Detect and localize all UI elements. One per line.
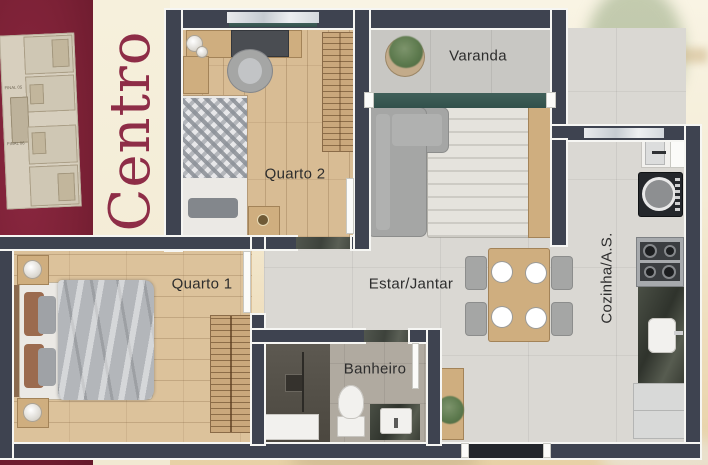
key-plan-unit-label: FINAL 06 <box>7 142 25 147</box>
room-label-varanda: Varanda <box>449 48 507 65</box>
bathroom-door <box>412 343 419 389</box>
fridge-door-split <box>634 410 684 411</box>
kitchen-window-sill <box>584 128 664 138</box>
wardrobe-bedroom1 <box>210 315 252 433</box>
wall-bathroom-top <box>252 330 364 342</box>
washer-door <box>645 180 673 208</box>
fridge <box>634 384 684 438</box>
burner <box>664 267 674 277</box>
living-plant <box>436 396 464 424</box>
bed-pillow-gray <box>38 296 56 334</box>
wardrobe-bedroom2 <box>322 32 358 152</box>
dining-chair <box>466 257 486 289</box>
service-door <box>670 139 685 168</box>
single-bed-pillow <box>188 198 238 218</box>
room-label-quarto1: Quarto 1 <box>172 276 233 293</box>
wall-bathroom-right <box>428 330 440 444</box>
kitchen-sink <box>648 318 676 353</box>
wall-balcony-right <box>552 10 566 140</box>
balcony-sliding-door <box>374 93 546 108</box>
toilet-tank <box>337 416 365 437</box>
dining-chair <box>466 303 486 335</box>
sink-faucet <box>394 418 398 428</box>
toilet-bowl <box>338 385 364 419</box>
bed-duvet <box>58 280 154 400</box>
desk-decor <box>197 47 207 57</box>
single-bed-blanket <box>181 98 247 178</box>
wall-left-upper <box>166 10 181 250</box>
bathroom-door-threshold <box>364 330 410 342</box>
room-label-estar-jantar: Estar/Jantar <box>369 276 453 293</box>
burner <box>646 268 654 276</box>
place-setting <box>526 263 546 283</box>
office-chair-seat <box>238 58 262 84</box>
shower-tray <box>266 415 318 439</box>
key-plan-room <box>29 164 80 206</box>
balcony-door-sill <box>546 92 556 108</box>
room-label-banheiro: Banheiro <box>344 361 406 378</box>
sofa-cushion <box>392 114 442 146</box>
key-plan: FINAL 05 FINAL 06 <box>0 32 82 209</box>
key-plan-unit-label: FINAL 05 <box>4 86 22 91</box>
nightstand-bowl <box>258 215 268 225</box>
desk-return <box>183 56 209 94</box>
plan-title: Centro <box>95 6 167 256</box>
laundry-faucet <box>652 151 666 154</box>
floor-plan-poster: FINAL 05 FINAL 06 Centro <box>0 0 708 465</box>
bedroom2-door-threshold <box>296 237 352 249</box>
wall-bedroom1-right-top <box>252 237 264 249</box>
bedroom2-door <box>346 178 354 234</box>
balcony-plant <box>389 36 423 68</box>
entry-door-jamb <box>543 443 551 458</box>
sofa-cushions <box>376 114 390 230</box>
shower-column <box>286 375 302 391</box>
place-setting <box>492 262 512 282</box>
tv-sideboard <box>528 100 552 238</box>
wall-right <box>686 126 700 458</box>
burner <box>666 247 674 255</box>
room-label-cozinha-as: Cozinha/A.S. <box>599 232 616 323</box>
key-plan-room <box>27 124 78 164</box>
bedroom1-door <box>243 251 251 313</box>
balcony-door-sill <box>364 92 374 108</box>
key-plan-room <box>23 35 74 75</box>
burner <box>645 246 655 256</box>
dining-chair <box>552 303 572 335</box>
key-plan-room <box>25 74 76 112</box>
place-setting <box>492 307 512 327</box>
nightstand-lamp <box>24 404 41 421</box>
entry-door-recess <box>468 444 544 458</box>
kitchen-faucet <box>674 331 683 335</box>
bed-pillow-gray <box>38 348 56 386</box>
place-setting <box>526 308 546 328</box>
bedroom2-window <box>227 12 319 23</box>
wall-left-lower <box>0 237 12 458</box>
entry-door-jamb <box>461 443 469 458</box>
wall-bottom <box>0 444 700 458</box>
room-label-quarto2: Quarto 2 <box>265 166 326 183</box>
washer-controls <box>675 177 680 211</box>
shower-pipe <box>302 352 304 412</box>
bedroom2-window-glass <box>229 23 317 27</box>
wall-bedroom2-right <box>355 10 369 249</box>
dining-chair <box>552 257 572 289</box>
wall-living-kitchen <box>552 140 566 245</box>
nightstand-lamp <box>24 261 41 278</box>
